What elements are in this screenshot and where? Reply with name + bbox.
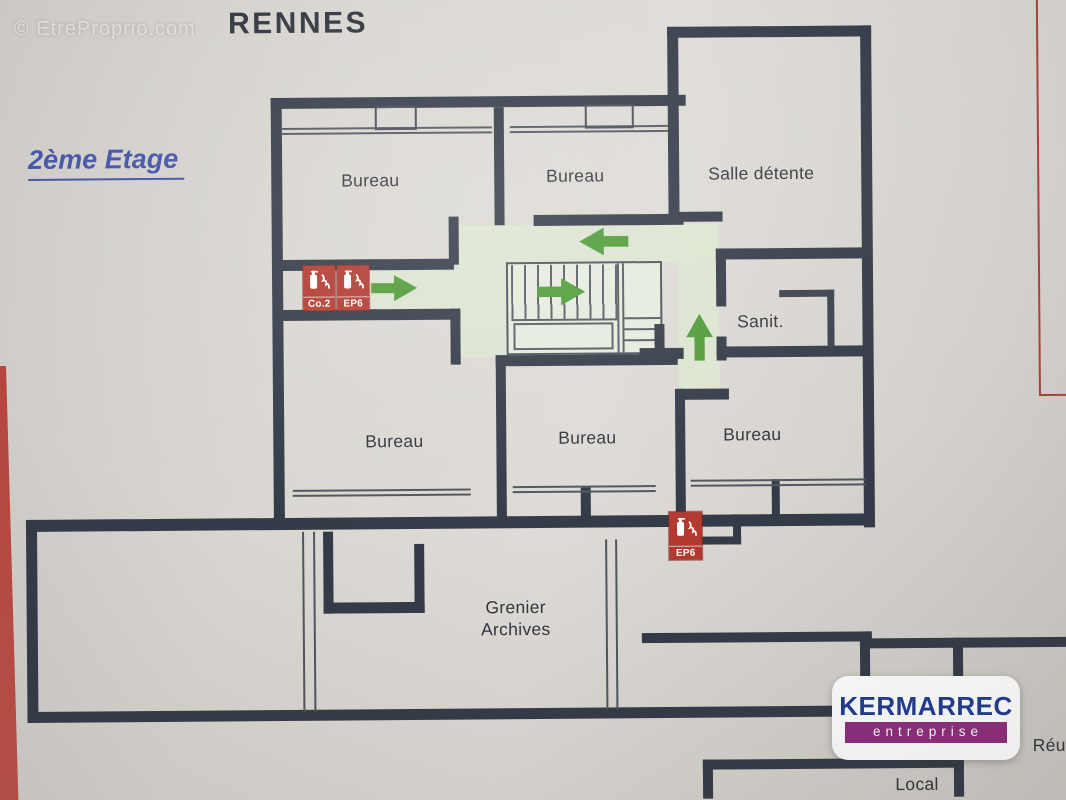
wall-segment xyxy=(449,217,459,265)
stair-rail xyxy=(617,263,620,352)
fire-extinguisher-icon: EP6 xyxy=(669,512,702,560)
wall-segment xyxy=(26,520,39,723)
wall-segment xyxy=(27,705,870,723)
partition-line xyxy=(313,532,316,712)
fire-extinguisher-station: EP6 xyxy=(669,512,702,560)
wall-segment xyxy=(860,25,875,527)
wall-segment xyxy=(323,532,334,614)
stair-step-line xyxy=(624,317,660,319)
extinguisher-label: EP6 xyxy=(669,546,702,560)
grenier-line2: Archives xyxy=(481,619,551,640)
wall-segment xyxy=(667,25,871,38)
window-line xyxy=(281,131,492,135)
wall-segment xyxy=(414,544,425,613)
fire-extinguisher-icon: Co.2 xyxy=(303,266,335,311)
building-title: RENNES xyxy=(228,6,368,41)
partition-line xyxy=(605,539,608,709)
stair-divider xyxy=(511,318,617,321)
room-label-sanitaires: Sanit. xyxy=(725,311,795,333)
floor-title: 2ème Etage xyxy=(28,144,184,181)
room-label-salle-detente: Salle détente xyxy=(701,163,821,185)
room-label-reunion-cut: Réu xyxy=(1033,735,1066,756)
stair-landing xyxy=(513,322,613,350)
agency-logo-brand: KERMARREC xyxy=(839,693,1013,719)
wall-segment xyxy=(716,247,863,259)
wall-segment xyxy=(26,513,871,532)
window-line xyxy=(293,493,471,496)
partition-line xyxy=(827,290,834,347)
wall-segment xyxy=(701,536,741,544)
room-label-bureau-bottom-middle: Bureau xyxy=(545,427,629,449)
room-label-bureau-top-middle: Bureau xyxy=(533,165,617,187)
fire-extinguisher-station: Co.2 EP6 xyxy=(303,265,369,311)
window-line xyxy=(510,130,668,133)
wall-segment xyxy=(534,214,684,226)
wall-segment xyxy=(679,212,723,222)
wall-segment xyxy=(675,389,686,522)
evacuation-arrow-right-icon xyxy=(537,276,585,308)
agency-logo: KERMARREC entreprise xyxy=(832,676,1020,760)
evacuation-plan-photo: RENNES 2ème Etage xyxy=(0,0,1066,800)
wall-segment xyxy=(642,631,872,643)
agency-logo-subtitle: entreprise xyxy=(845,722,1007,743)
fire-extinguisher-icon: EP6 xyxy=(337,265,369,310)
evacuation-route-highlight xyxy=(457,261,508,357)
wall-segment xyxy=(667,27,680,219)
room-label-bureau-top-left: Bureau xyxy=(328,170,412,192)
wall-segment xyxy=(717,345,864,357)
room-label-local: Local xyxy=(877,774,957,796)
wall-segment xyxy=(640,348,684,359)
partition-line xyxy=(779,290,834,297)
partition-line xyxy=(302,532,305,712)
window-line xyxy=(293,488,471,491)
extinguisher-label: EP6 xyxy=(337,296,369,310)
wall-segment xyxy=(716,248,726,306)
door-recess xyxy=(375,106,417,130)
evacuation-arrow-up-icon xyxy=(683,314,715,361)
grenier-line1: Grenier xyxy=(485,597,546,617)
wall-segment xyxy=(494,107,505,225)
partition-line xyxy=(615,539,618,709)
wall-segment xyxy=(703,760,713,799)
evacuation-arrow-right-icon xyxy=(371,273,417,303)
wall-segment xyxy=(867,637,1066,649)
door-recess xyxy=(585,104,634,128)
room-label-bureau-bottom-left: Bureau xyxy=(352,431,436,453)
wall-segment xyxy=(496,355,507,525)
legend-frame xyxy=(1036,0,1066,396)
wall-segment xyxy=(324,602,425,614)
extinguisher-label: Co.2 xyxy=(303,297,335,311)
watermark: © EtreProprio.com xyxy=(14,18,196,41)
room-label-grenier-archives: Grenier Archives xyxy=(456,596,576,641)
room-label-bureau-bottom-right: Bureau xyxy=(710,424,794,446)
wall-segment xyxy=(450,309,460,365)
evacuation-arrow-left-icon xyxy=(579,225,629,257)
evacuation-route-highlight xyxy=(678,224,720,391)
